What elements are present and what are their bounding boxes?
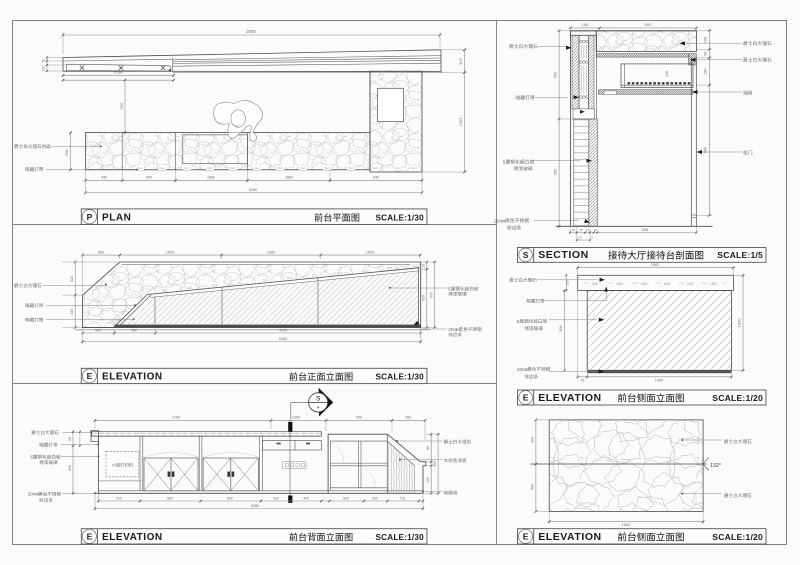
- svg-text:20: 20: [578, 236, 582, 240]
- svg-text:CL1: CL1: [262, 278, 268, 283]
- svg-text:250: 250: [405, 416, 411, 420]
- svg-text:LED: LED: [616, 282, 623, 286]
- svg-text:150: 150: [566, 280, 570, 286]
- svg-text:190: 190: [704, 68, 708, 74]
- svg-text:CL1: CL1: [254, 166, 260, 170]
- svg-text:630: 630: [422, 295, 426, 301]
- svg-text:LED: LED: [664, 282, 671, 286]
- svg-text:LED: LED: [592, 282, 599, 286]
- svg-text:SCALE:1/30: SCALE:1/30: [375, 372, 424, 381]
- svg-text:90: 90: [426, 446, 430, 450]
- svg-text:CL1: CL1: [300, 166, 306, 170]
- svg-text:940: 940: [373, 176, 379, 180]
- svg-text:1880: 1880: [285, 176, 293, 180]
- svg-text:25: 25: [581, 378, 585, 382]
- svg-text:ELEVATION: ELEVATION: [102, 371, 163, 382]
- svg-text:100: 100: [704, 37, 708, 43]
- svg-text:CL1: CL1: [207, 166, 213, 170]
- svg-text:1700: 1700: [114, 70, 124, 75]
- svg-text:800: 800: [559, 326, 563, 332]
- svg-text:CL1: CL1: [237, 280, 243, 285]
- svg-text:100: 100: [426, 477, 430, 483]
- svg-text:5: 5: [448, 286, 451, 291]
- svg-text:CL1: CL1: [212, 283, 218, 288]
- svg-text:P: P: [87, 212, 93, 222]
- svg-text:50: 50: [704, 51, 708, 55]
- svg-text:E: E: [523, 393, 529, 403]
- svg-text:ELEVATION: ELEVATION: [538, 531, 601, 543]
- svg-text:60: 60: [68, 437, 72, 441]
- svg-text:340: 340: [101, 176, 107, 180]
- svg-text:511: 511: [400, 496, 405, 500]
- svg-text:150: 150: [42, 66, 46, 72]
- svg-text:E: E: [87, 531, 93, 541]
- svg-text:CL1: CL1: [348, 166, 354, 170]
- svg-text:450: 450: [131, 328, 137, 332]
- svg-text:300: 300: [530, 437, 534, 443]
- svg-text:320: 320: [372, 496, 378, 500]
- svg-text:SCALE:1/30: SCALE:1/30: [375, 533, 424, 542]
- svg-text:CL1: CL1: [277, 166, 283, 170]
- svg-text:520: 520: [68, 465, 72, 471]
- svg-text:CL1: CL1: [387, 266, 393, 271]
- svg-text:CL1: CL1: [137, 166, 143, 170]
- svg-text:S: S: [523, 250, 529, 260]
- svg-text:1500: 1500: [267, 250, 275, 254]
- svg-text:CL1: CL1: [184, 166, 190, 170]
- svg-text:45: 45: [579, 228, 583, 232]
- svg-text:1000: 1000: [458, 117, 463, 127]
- svg-text:CL1: CL1: [162, 288, 168, 293]
- svg-text:LED: LED: [710, 282, 717, 286]
- svg-text:1780: 1780: [172, 416, 180, 420]
- svg-text:CL1: CL1: [324, 166, 330, 170]
- svg-text:600: 600: [433, 461, 437, 467]
- svg-text:CL1: CL1: [412, 263, 418, 268]
- svg-text:600: 600: [530, 484, 534, 490]
- svg-text:2800: 2800: [246, 29, 256, 34]
- svg-text:CL1: CL1: [395, 166, 401, 170]
- svg-text:500: 500: [98, 250, 104, 254]
- svg-text:CL1: CL1: [312, 273, 318, 278]
- svg-text:S: S: [316, 395, 321, 402]
- svg-text:50: 50: [42, 58, 46, 62]
- svg-text:4000: 4000: [279, 328, 287, 332]
- svg-text:CL1: CL1: [230, 166, 236, 170]
- svg-text:650: 650: [65, 149, 69, 155]
- svg-text:410: 410: [273, 496, 279, 500]
- svg-text:SECTION: SECTION: [538, 249, 589, 261]
- svg-text:1060: 1060: [292, 416, 300, 420]
- svg-text:ELEVATION: ELEVATION: [538, 392, 601, 404]
- svg-text:SCALE:1/5: SCALE:1/5: [717, 250, 763, 260]
- svg-text:610: 610: [116, 496, 122, 500]
- svg-text:500: 500: [95, 328, 101, 332]
- svg-text:1000: 1000: [737, 318, 742, 328]
- svg-text:540: 540: [146, 176, 152, 180]
- svg-text:CL1: CL1: [362, 268, 368, 273]
- svg-text:20: 20: [422, 264, 426, 268]
- svg-text:LED: LED: [641, 282, 648, 286]
- svg-text:20: 20: [594, 228, 598, 232]
- svg-text:850: 850: [167, 496, 173, 500]
- svg-text:CL1: CL1: [337, 271, 343, 276]
- svg-text:150: 150: [582, 22, 589, 27]
- svg-text:SCALE:1/30: SCALE:1/30: [375, 213, 424, 222]
- svg-text:450: 450: [553, 71, 558, 78]
- svg-text:440: 440: [303, 496, 309, 500]
- svg-text:500: 500: [645, 22, 652, 27]
- svg-text:LED: LED: [687, 282, 694, 286]
- svg-text:CL1: CL1: [411, 166, 417, 170]
- svg-text:5: 5: [30, 455, 33, 460]
- svg-text:E: E: [87, 371, 93, 381]
- svg-text:m: m: [502, 219, 506, 224]
- svg-text:550: 550: [553, 168, 558, 175]
- svg-text:SCALE:1/20: SCALE:1/20: [712, 532, 763, 542]
- svg-text:650: 650: [119, 102, 124, 109]
- svg-text:650: 650: [429, 292, 433, 298]
- svg-text:5280: 5280: [279, 337, 287, 341]
- svg-text:640: 640: [343, 496, 349, 500]
- svg-text:850: 850: [227, 496, 233, 500]
- svg-text:CL1: CL1: [287, 276, 293, 281]
- svg-text:5: 5: [503, 160, 506, 166]
- svg-text:CL1: CL1: [372, 166, 378, 170]
- svg-text:500: 500: [356, 416, 362, 420]
- svg-text:PLAN: PLAN: [102, 212, 131, 223]
- svg-text:CL1: CL1: [187, 285, 193, 290]
- svg-text:140: 140: [665, 71, 669, 77]
- svg-text:ELEVATION: ELEVATION: [102, 532, 163, 543]
- svg-text:E: E: [523, 531, 529, 541]
- svg-text:15: 15: [586, 228, 590, 232]
- svg-text:506: 506: [642, 228, 648, 232]
- svg-text:SCALE:1/20: SCALE:1/20: [712, 393, 763, 403]
- svg-text:300: 300: [458, 57, 463, 64]
- svg-text:660: 660: [704, 147, 708, 153]
- svg-text:1880: 1880: [207, 176, 215, 180]
- svg-text:5280: 5280: [249, 188, 257, 192]
- svg-text:1500: 1500: [166, 250, 174, 254]
- svg-text:5: 5: [517, 319, 520, 324]
- svg-text:320: 320: [70, 276, 74, 282]
- svg-text:330: 330: [70, 309, 74, 315]
- svg-text:CL1: CL1: [159, 166, 165, 170]
- svg-text:1500: 1500: [366, 250, 374, 254]
- svg-text:1462: 1462: [655, 379, 663, 383]
- svg-text:5280: 5280: [251, 504, 259, 508]
- svg-text:1562: 1562: [651, 262, 661, 267]
- svg-text:1562: 1562: [622, 522, 632, 527]
- svg-text:132°: 132°: [710, 463, 721, 469]
- svg-text:20: 20: [572, 228, 576, 232]
